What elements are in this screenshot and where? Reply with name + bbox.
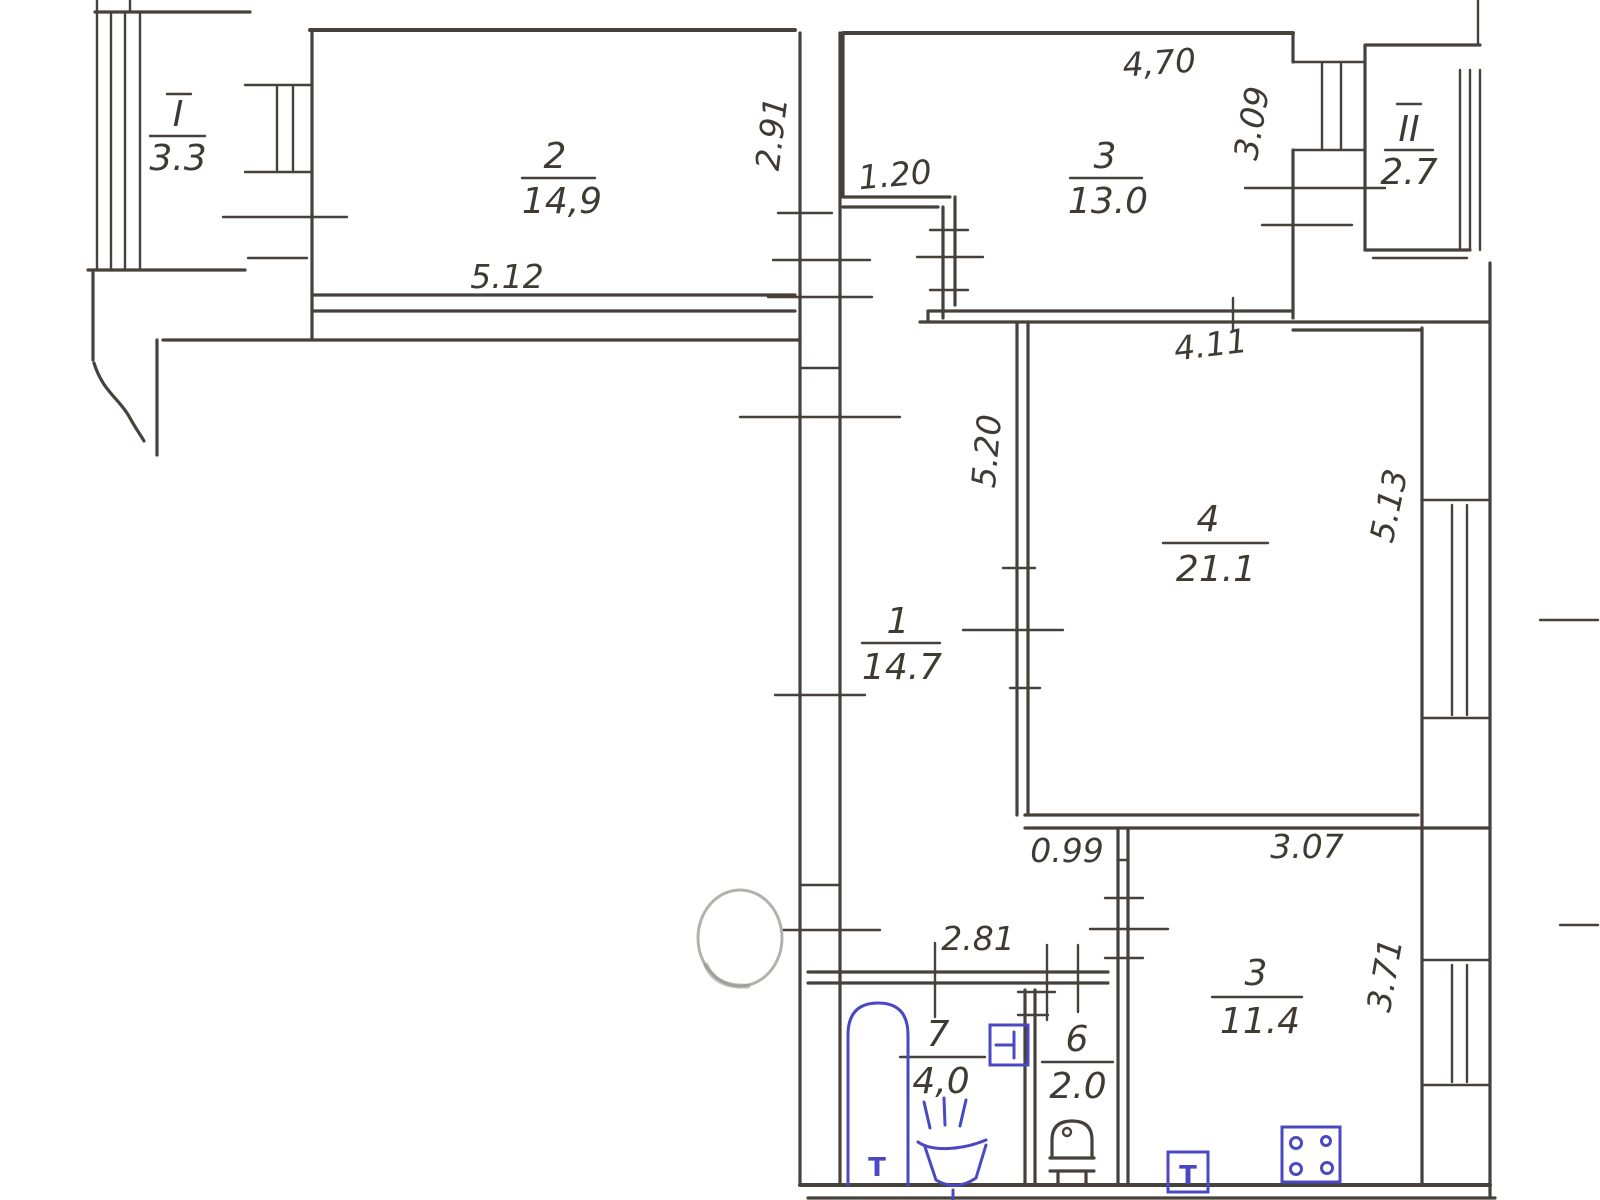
- room-label-7: 7 4,0: [900, 1014, 985, 1102]
- room-number: 6: [1066, 1019, 1089, 1060]
- room-labels: I 3.3 2 14,9 3 13.0 II 2.7 1 14.7 4: [149, 94, 1437, 1107]
- room-area: 2.7: [1380, 152, 1437, 193]
- room-label-6: 6 2.0: [1042, 1019, 1113, 1107]
- dimension-3-09: 3.09: [1226, 83, 1277, 162]
- dimension-3-07: 3.07: [1270, 827, 1343, 866]
- room-area: 14,9: [522, 181, 602, 222]
- dimension-1-20: 1.20: [857, 152, 934, 197]
- dimension-4-11: 4.11: [1172, 321, 1250, 369]
- dimension-5-20: 5.20: [964, 413, 1009, 490]
- dimension-5-12: 5.12: [470, 257, 543, 296]
- water-heater-icon: [990, 1025, 1028, 1065]
- room-label-3-top: 3 13.0: [1068, 136, 1148, 222]
- stove-icon: [1282, 1127, 1340, 1182]
- room-area: 13.0: [1068, 181, 1148, 222]
- room-area: 11.4: [1220, 1001, 1300, 1042]
- dimension-5-13: 5.13: [1362, 466, 1415, 546]
- room-number: 2: [544, 136, 567, 177]
- interior-walls: [808, 322, 1490, 1185]
- room-number: 3: [1245, 953, 1268, 994]
- outer-walls: [88, 0, 1598, 1198]
- room-area: 21.1: [1176, 549, 1256, 590]
- dimension-4-70: 4,70: [1121, 41, 1197, 85]
- dimension-2-81: 2.81: [941, 919, 1014, 958]
- room-label-balcony-2: II 2.7: [1380, 104, 1437, 193]
- dimension-2-91: 2.91: [748, 95, 796, 173]
- room-number: I: [173, 94, 184, 135]
- room-label-balcony-1: I 3.3: [149, 94, 206, 179]
- dimension-labels: 5.12 2.91 1.20 4,70 3.09 5.20 4.11 5.13 …: [470, 41, 1415, 1015]
- room-area: 4,0: [912, 1061, 969, 1102]
- toilet-icon: [1050, 1121, 1094, 1185]
- dimension-3-71: 3.71: [1359, 935, 1410, 1014]
- room-label-4: 4 21.1: [1163, 499, 1268, 590]
- room-area: 14.7: [862, 647, 942, 688]
- eraser-mark: [698, 890, 782, 986]
- room-area: 2.0: [1049, 1066, 1106, 1107]
- kitchen-sink-label: T: [1179, 1161, 1197, 1191]
- room-label-1: 1 14.7: [862, 601, 942, 688]
- room-number: 4: [1197, 499, 1220, 540]
- room-area: 3.3: [149, 138, 206, 179]
- room-label-3-kitchen: 3 11.4: [1212, 953, 1302, 1042]
- floor-plan-drawing: I 3.3 2 14,9 3 13.0 II 2.7 1 14.7 4: [0, 0, 1600, 1200]
- room-number: 3: [1094, 136, 1117, 177]
- dimension-0-99: 0.99: [1030, 831, 1103, 870]
- room-number: 1: [887, 601, 910, 642]
- room-label-2: 2 14,9: [522, 136, 602, 222]
- room-number: II: [1398, 109, 1419, 150]
- bathtub-label: T: [868, 1153, 886, 1183]
- floor-plan-scan: I 3.3 2 14,9 3 13.0 II 2.7 1 14.7 4: [0, 0, 1600, 1200]
- bathtub-icon: T: [848, 1003, 908, 1185]
- room-number: 7: [927, 1014, 950, 1055]
